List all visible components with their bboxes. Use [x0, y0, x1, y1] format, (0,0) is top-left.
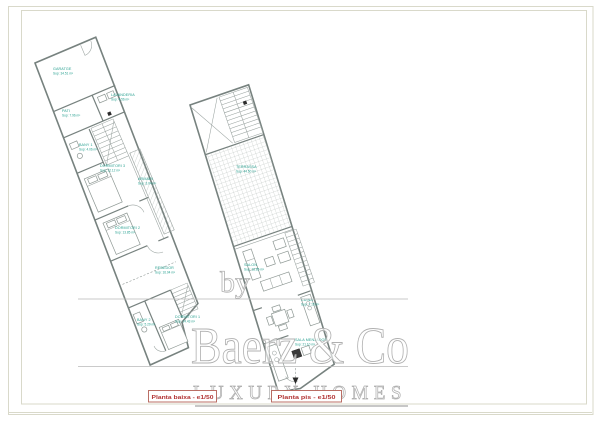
scale-label-first: Planta pis - e1/50 [272, 391, 342, 403]
svg-text:REBEDOR: REBEDOR [155, 266, 174, 270]
scale-label-ground: Planta baixa - e1/50 [149, 391, 217, 403]
scale-label-first-text: Planta pis - e1/50 [278, 395, 336, 401]
svg-text:DORMITORI 2: DORMITORI 2 [115, 226, 140, 230]
svg-text:Sup: 13.85 m²: Sup: 13.85 m² [115, 231, 135, 235]
svg-text:Sup: 34.51 m²: Sup: 34.51 m² [53, 72, 73, 76]
svg-text:DORMITORI 3: DORMITORI 3 [100, 164, 125, 168]
svg-text:Sup: 5.29 m²: Sup: 5.29 m² [137, 323, 155, 327]
svg-text:Sup: 4.06 m²: Sup: 4.06 m² [79, 148, 97, 152]
svg-text:BANY 1: BANY 1 [79, 143, 93, 147]
room-label-terrassa: TERRASSA Sup: 44.50 m² [236, 165, 257, 174]
svg-text:Sup: 7.15 m²: Sup: 7.15 m² [301, 303, 319, 307]
room-label-armari: ARMARI Sup: 3.04 m² [138, 177, 156, 186]
svg-text:PATI: PATI [62, 109, 70, 113]
svg-text:TERRASSA: TERRASSA [236, 165, 257, 169]
floor-plan-drawing: GARATGE Sup: 34.51 m² LAVANDERIA Sup: 4.… [0, 0, 600, 424]
svg-text:LAVANDERIA: LAVANDERIA [111, 93, 135, 97]
svg-text:GARATGE: GARATGE [53, 67, 72, 71]
scale-label-ground-text: Planta baixa - e1/50 [152, 395, 214, 401]
svg-text:BANY 2: BANY 2 [137, 318, 151, 322]
room-label-garatge: GARATGE Sup: 34.51 m² [53, 67, 73, 76]
svg-text:Sup: 7.96 m²: Sup: 7.96 m² [62, 114, 80, 118]
svg-text:Sup: 12.12 m²: Sup: 12.12 m² [100, 169, 120, 173]
svg-text:Sup: 44.50 m²: Sup: 44.50 m² [236, 170, 256, 174]
svg-text:ARMARI: ARMARI [138, 177, 153, 181]
svg-text:Sup: 3.04 m²: Sup: 3.04 m² [138, 182, 156, 186]
room-label-rebedor: REBEDOR Sup: 16.04 m² [155, 266, 175, 275]
svg-text:Sup: 4.56 m²: Sup: 4.56 m² [111, 98, 129, 102]
floor-plan-sheet: GARATGE Sup: 34.51 m² LAVANDERIA Sup: 4.… [0, 0, 600, 424]
room-label-lavanderia: LAVANDERIA Sup: 4.56 m² [111, 93, 135, 102]
svg-text:Sup: 16.04 m²: Sup: 16.04 m² [155, 271, 175, 275]
watermark-by: by [220, 266, 250, 299]
